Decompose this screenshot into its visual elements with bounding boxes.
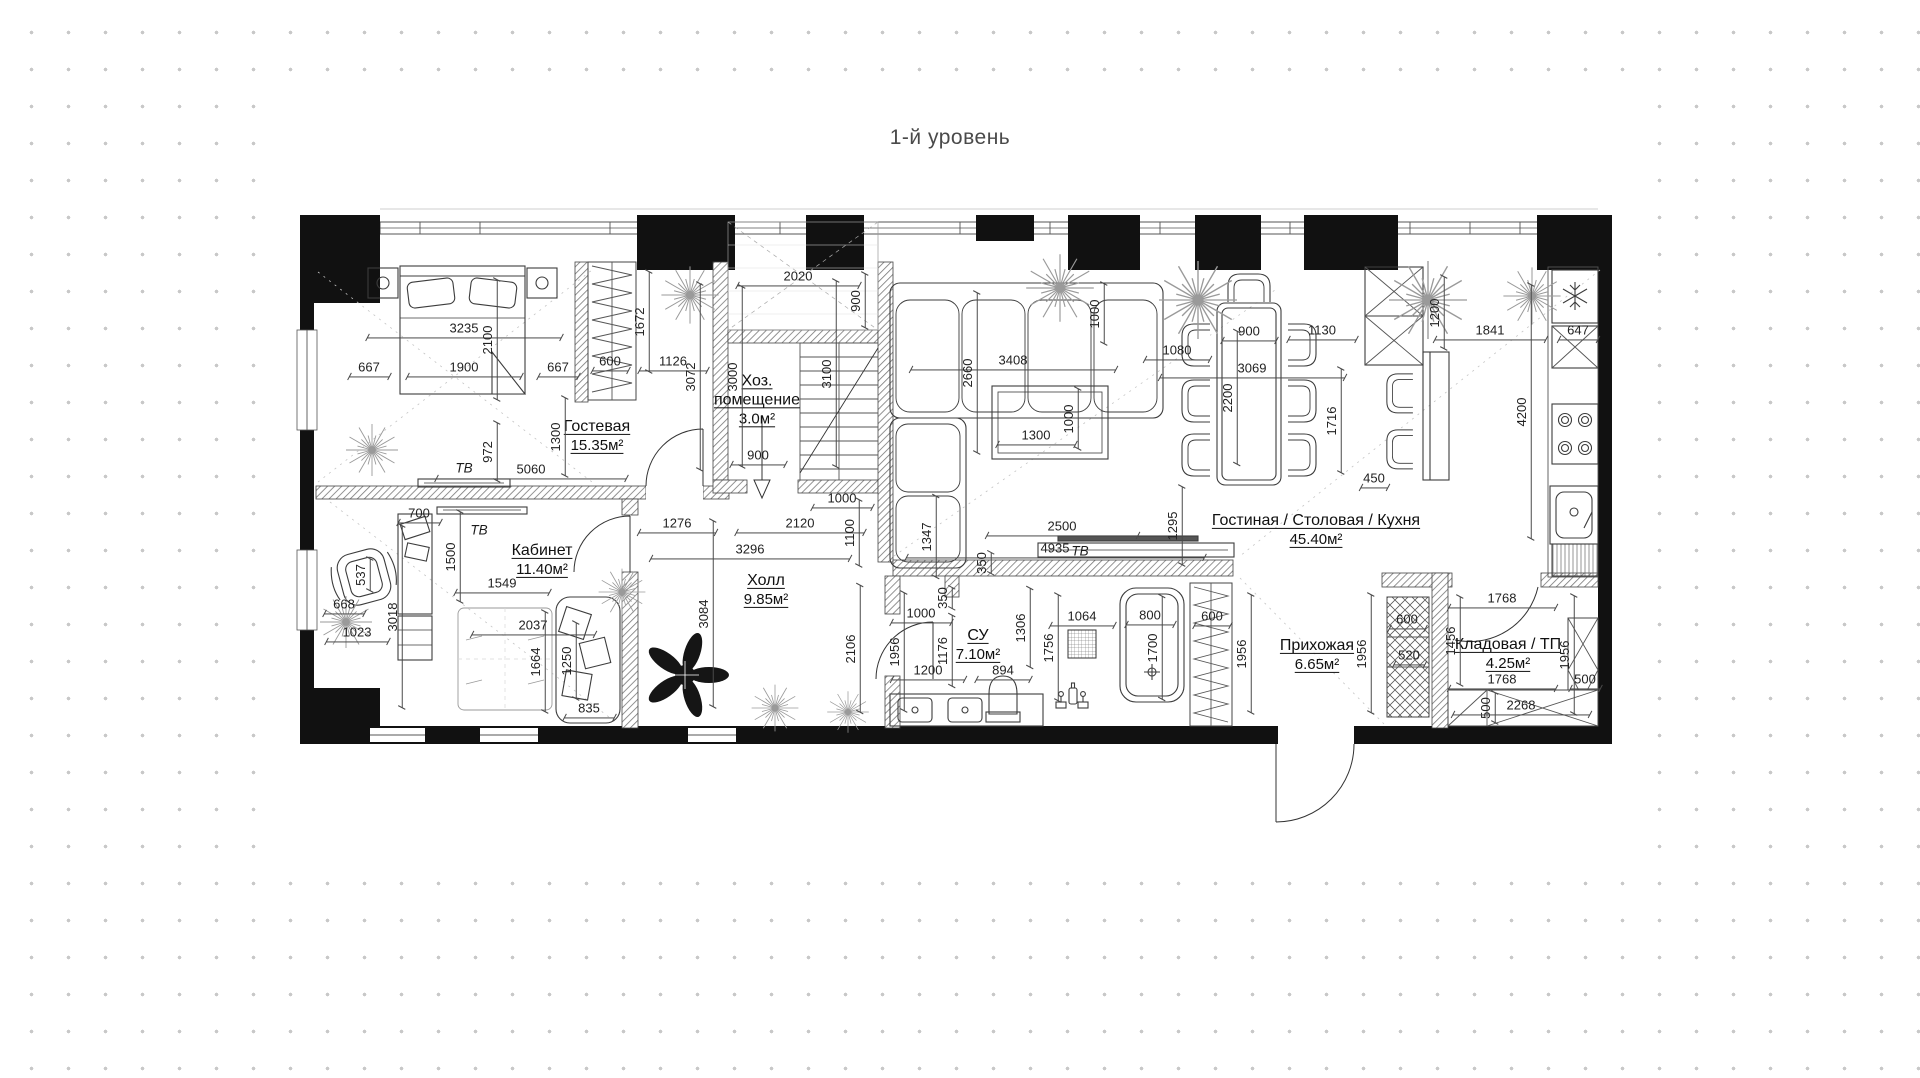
office-tv-console [437, 507, 527, 514]
door-entry [1276, 744, 1354, 822]
tv-console [1038, 536, 1234, 557]
toiletries-icons [1056, 683, 1088, 708]
bar-area [1365, 267, 1449, 480]
door-guest [646, 429, 703, 486]
plant-icon [752, 685, 799, 732]
wardrobe-guest [588, 262, 636, 400]
plant-icon [346, 424, 398, 476]
bar-stool [1387, 430, 1413, 469]
plant-icon [661, 266, 718, 323]
dining-table [1182, 274, 1316, 485]
office-sofa [556, 597, 620, 723]
storage-wardrobes [1448, 618, 1598, 726]
bathtub-icon [1120, 588, 1184, 702]
office-chair [326, 544, 401, 611]
kitchen-sink-icon [1550, 486, 1598, 544]
tall-cabinet [1552, 326, 1598, 368]
plant-icon [1159, 261, 1237, 339]
stove-icon [1552, 404, 1598, 464]
dishwasher-icon [1552, 544, 1598, 576]
corner-sofa [890, 283, 1163, 568]
dining-chair [1182, 434, 1210, 476]
plant-icon [1389, 261, 1467, 339]
stair-down-arrow [754, 415, 770, 498]
monstera-plant-icon [645, 631, 729, 720]
wardrobe-hall [1190, 583, 1232, 726]
office-bed [458, 608, 552, 710]
dining-chair [1288, 434, 1316, 476]
fridge-icon [1552, 270, 1598, 323]
washing-machine-icon [1068, 630, 1096, 658]
dining-chair [1288, 324, 1316, 366]
office-desk [398, 514, 432, 660]
bathroom-fixtures [890, 588, 1184, 726]
door-storage [1455, 587, 1538, 642]
bar-stool [1387, 374, 1413, 413]
toilet-icon [986, 676, 1020, 722]
kitchen-counter [1548, 267, 1598, 577]
door-office [574, 516, 630, 572]
dining-chair [1228, 274, 1270, 302]
door-bathroom [876, 622, 933, 679]
radiator-cabinet [1387, 597, 1429, 717]
dining-chair [1182, 324, 1210, 366]
floorplan-canvas: 1-й уровень [0, 0, 1920, 1078]
guest-bed [368, 266, 557, 394]
dining-chair [1288, 380, 1316, 422]
floorplan-drawing [0, 0, 1920, 1078]
dining-chair [1182, 380, 1210, 422]
